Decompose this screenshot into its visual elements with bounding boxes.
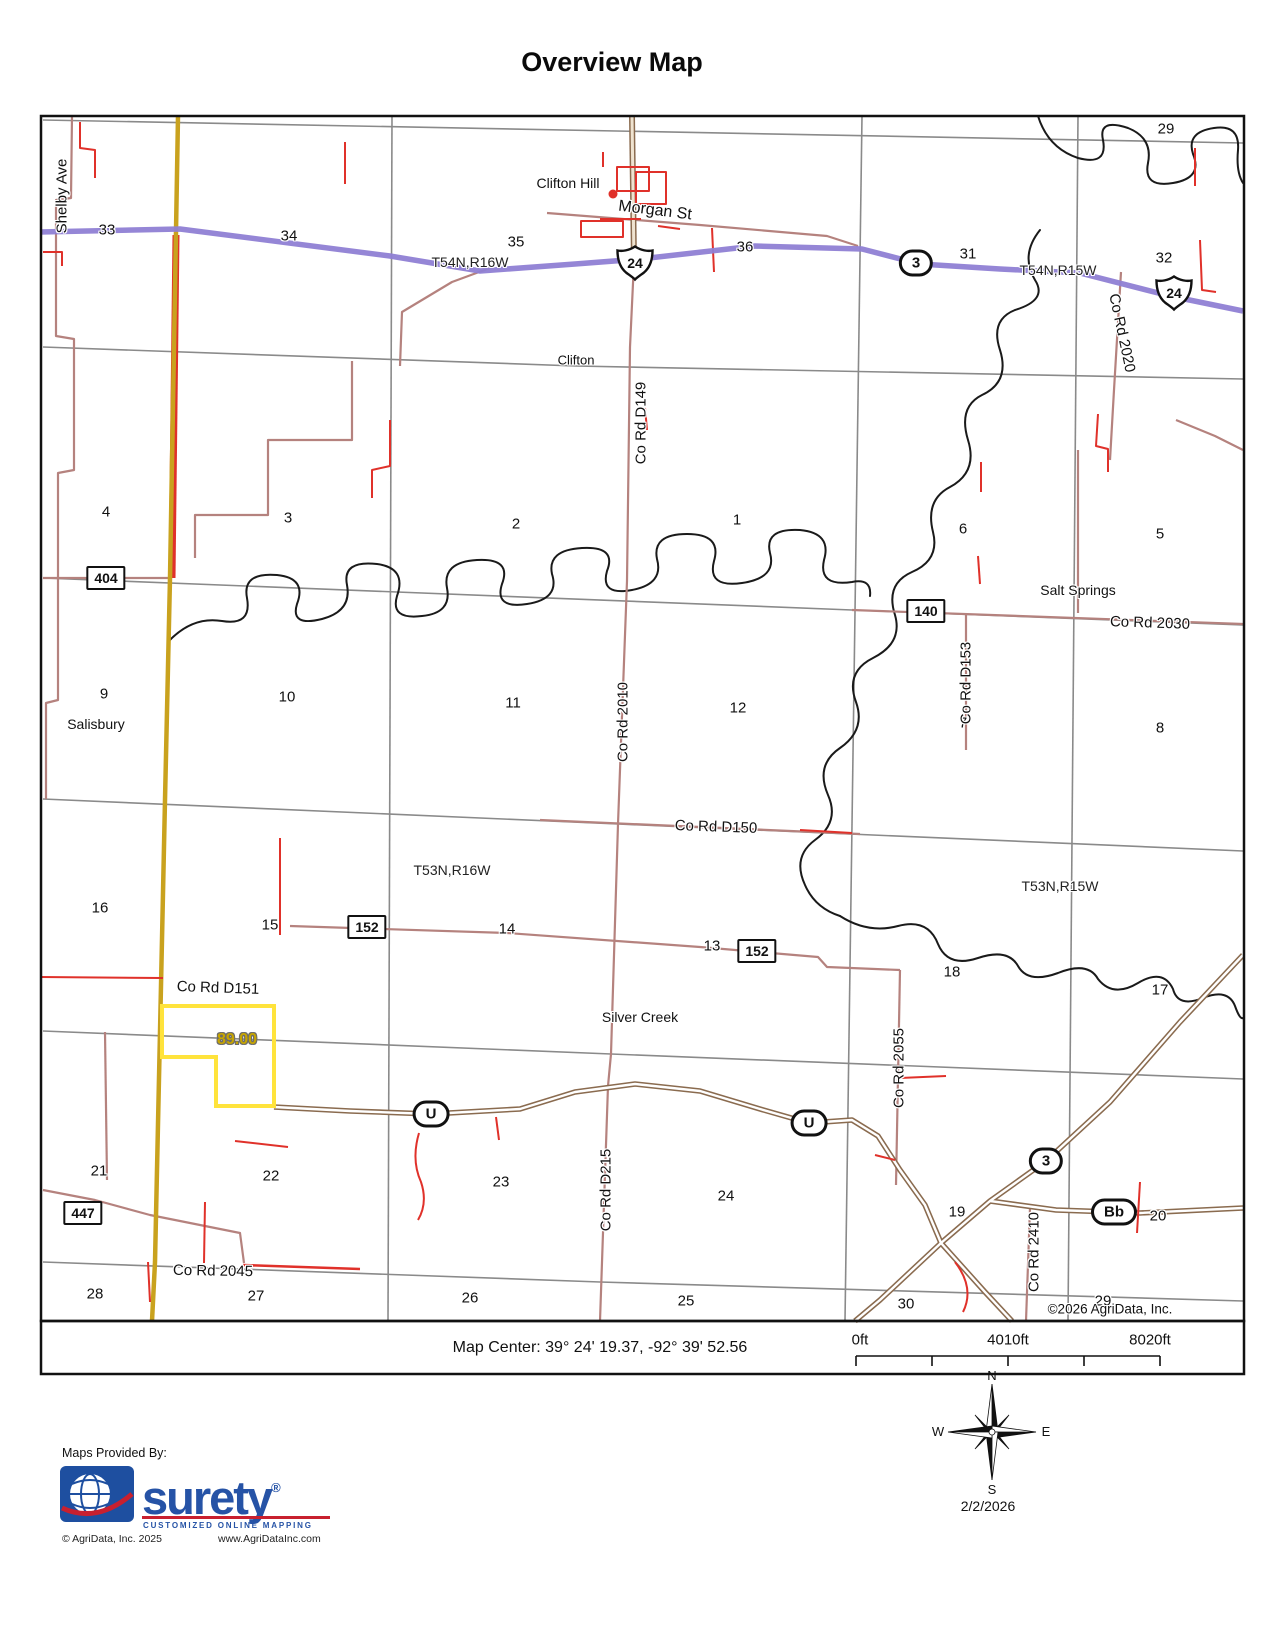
us-24-shield: 24 [615, 244, 655, 282]
scale-tick-label: 8020ft [1129, 1332, 1171, 1349]
agridata-copyright: © AgriData, Inc. 2025 [62, 1533, 162, 1545]
section-grid [43, 116, 1243, 1321]
compass-west-label: W [932, 1424, 945, 1439]
place-label-salisbury: Salisbury [67, 716, 125, 732]
map-center-coordinates: Map Center: 39° 24' 19.37, -92° 39' 52.5… [453, 1339, 748, 1357]
place-label-salt-springs: Salt Springs [1040, 582, 1115, 598]
surety-wordmark: surety® [142, 1466, 281, 1520]
svg-text:24: 24 [1166, 285, 1182, 301]
section-number: 23 [493, 1174, 510, 1191]
registered-mark: ® [271, 1480, 281, 1495]
section-number: 1 [733, 512, 741, 529]
map-copyright: ©2026 AgriData, Inc. [1048, 1302, 1173, 1317]
section-number: 35 [508, 234, 525, 251]
township-label: T53N,R15W [1021, 878, 1098, 894]
county-route-404-shield: 404 [86, 566, 125, 590]
road-label-co-rd-d151: Co Rd D151 [176, 978, 259, 998]
road-label-co-rd-2045: Co Rd 2045 [173, 1262, 253, 1280]
section-number: 18 [944, 964, 961, 981]
section-number: 27 [248, 1288, 265, 1305]
yellow-road [152, 116, 178, 1321]
section-number: 24 [718, 1188, 735, 1205]
scale-tick-label: 0ft [852, 1332, 869, 1349]
svg-text:24: 24 [627, 255, 643, 271]
surety-logo: surety® [60, 1466, 281, 1522]
section-number: 11 [505, 695, 521, 712]
road-label-co-rd-2055: Co Rd 2055 [891, 1028, 908, 1108]
parcel-acreage-label: 89.00 [217, 1031, 257, 1049]
township-label: T54N,R16W [431, 254, 508, 270]
road-label-co-rd-2410: Co Rd 2410 [1026, 1212, 1043, 1292]
township-label: T54N,R15W [1019, 262, 1096, 278]
surety-red-rule [142, 1516, 330, 1519]
subject-parcel-outline [162, 1006, 274, 1106]
place-label-silver-creek: Silver Creek [602, 1009, 678, 1025]
section-number: 3 [284, 510, 292, 527]
compass-east-label: E [1042, 1424, 1051, 1439]
section-number: 21 [91, 1163, 108, 1180]
county-roads [43, 116, 1243, 1321]
road-label-co-rd-d215: Co Rd D215 [598, 1149, 615, 1232]
compass-rose: N E S W [932, 1368, 1052, 1498]
section-number: 5 [1156, 526, 1164, 543]
section-number: 30 [898, 1296, 915, 1313]
surety-globe-icon [60, 1466, 134, 1522]
overview-map-page: Overview Map [0, 0, 1275, 1650]
section-number: 15 [262, 917, 279, 934]
section-number: 29 [1158, 121, 1175, 138]
road-label-co-rd-d153: Co Rd D153 [958, 642, 975, 725]
state-route-bb-shield: Bb [1091, 1199, 1137, 1226]
section-number: 36 [737, 239, 754, 256]
section-number: 34 [281, 228, 298, 245]
agridata-website: www.AgriDataInc.com [218, 1533, 321, 1545]
section-number: 14 [499, 921, 516, 938]
map-frame [41, 116, 1244, 1374]
us-24-shield: 24 [1154, 274, 1194, 312]
state-route-3-shield: 3 [1029, 1148, 1063, 1175]
maps-provided-by-label: Maps Provided By: [62, 1446, 167, 1460]
section-number: 8 [1156, 720, 1164, 737]
map-date: 2/2/2026 [961, 1498, 1016, 1514]
township-label: T53N,R16W [413, 862, 490, 878]
section-number: 10 [279, 689, 296, 706]
road-label-co-rd-2030: Co Rd 2030 [1110, 613, 1191, 633]
state-route-3-shield: 3 [899, 250, 933, 277]
county-route-447-shield: 447 [63, 1201, 102, 1225]
section-number: 19 [949, 1204, 966, 1221]
state-route-u-shield: U [413, 1101, 450, 1128]
page-title: Overview Map [521, 47, 703, 78]
section-number: 16 [92, 900, 109, 917]
section-number: 31 [960, 246, 977, 263]
double-line-roads [274, 116, 1243, 1321]
road-label-co-rd-d150: Co Rd D150 [674, 817, 757, 837]
section-number: 6 [959, 521, 967, 538]
county-route-152-shield: 152 [347, 915, 386, 939]
scale-tick-label: 4010ft [987, 1332, 1029, 1349]
county-route-152-shield: 152 [737, 939, 776, 963]
section-number: 28 [87, 1286, 104, 1303]
scale-bar [856, 1356, 1160, 1366]
state-route-u-shield: U [791, 1110, 828, 1137]
county-route-140-shield: 140 [906, 599, 945, 623]
road-label-co-rd-2010: Co Rd 2010 [615, 682, 632, 762]
section-number: 20 [1150, 1208, 1167, 1225]
compass-south-label: S [988, 1482, 997, 1497]
section-number: 9 [100, 686, 108, 703]
road-label-shelby-ave: Shelby Ave [54, 159, 71, 234]
section-number: 2 [512, 516, 520, 533]
section-number: 25 [678, 1293, 695, 1310]
section-number: 22 [263, 1168, 280, 1185]
surety-tagline: CUSTOMIZED ONLINE MAPPING [143, 1521, 313, 1530]
section-number: 32 [1156, 250, 1173, 267]
section-number: 4 [102, 504, 110, 521]
place-label-clifton: Clifton [558, 353, 595, 368]
section-number: 26 [462, 1290, 479, 1307]
section-number: 12 [730, 700, 747, 717]
road-label-co-rd-d149: Co Rd D149 [633, 382, 650, 465]
place-label-clifton-hill: Clifton Hill [536, 175, 599, 191]
section-number: 17 [1152, 982, 1169, 999]
compass-north-label: N [987, 1368, 996, 1383]
section-number: 33 [99, 222, 116, 239]
section-number: 13 [704, 938, 721, 955]
